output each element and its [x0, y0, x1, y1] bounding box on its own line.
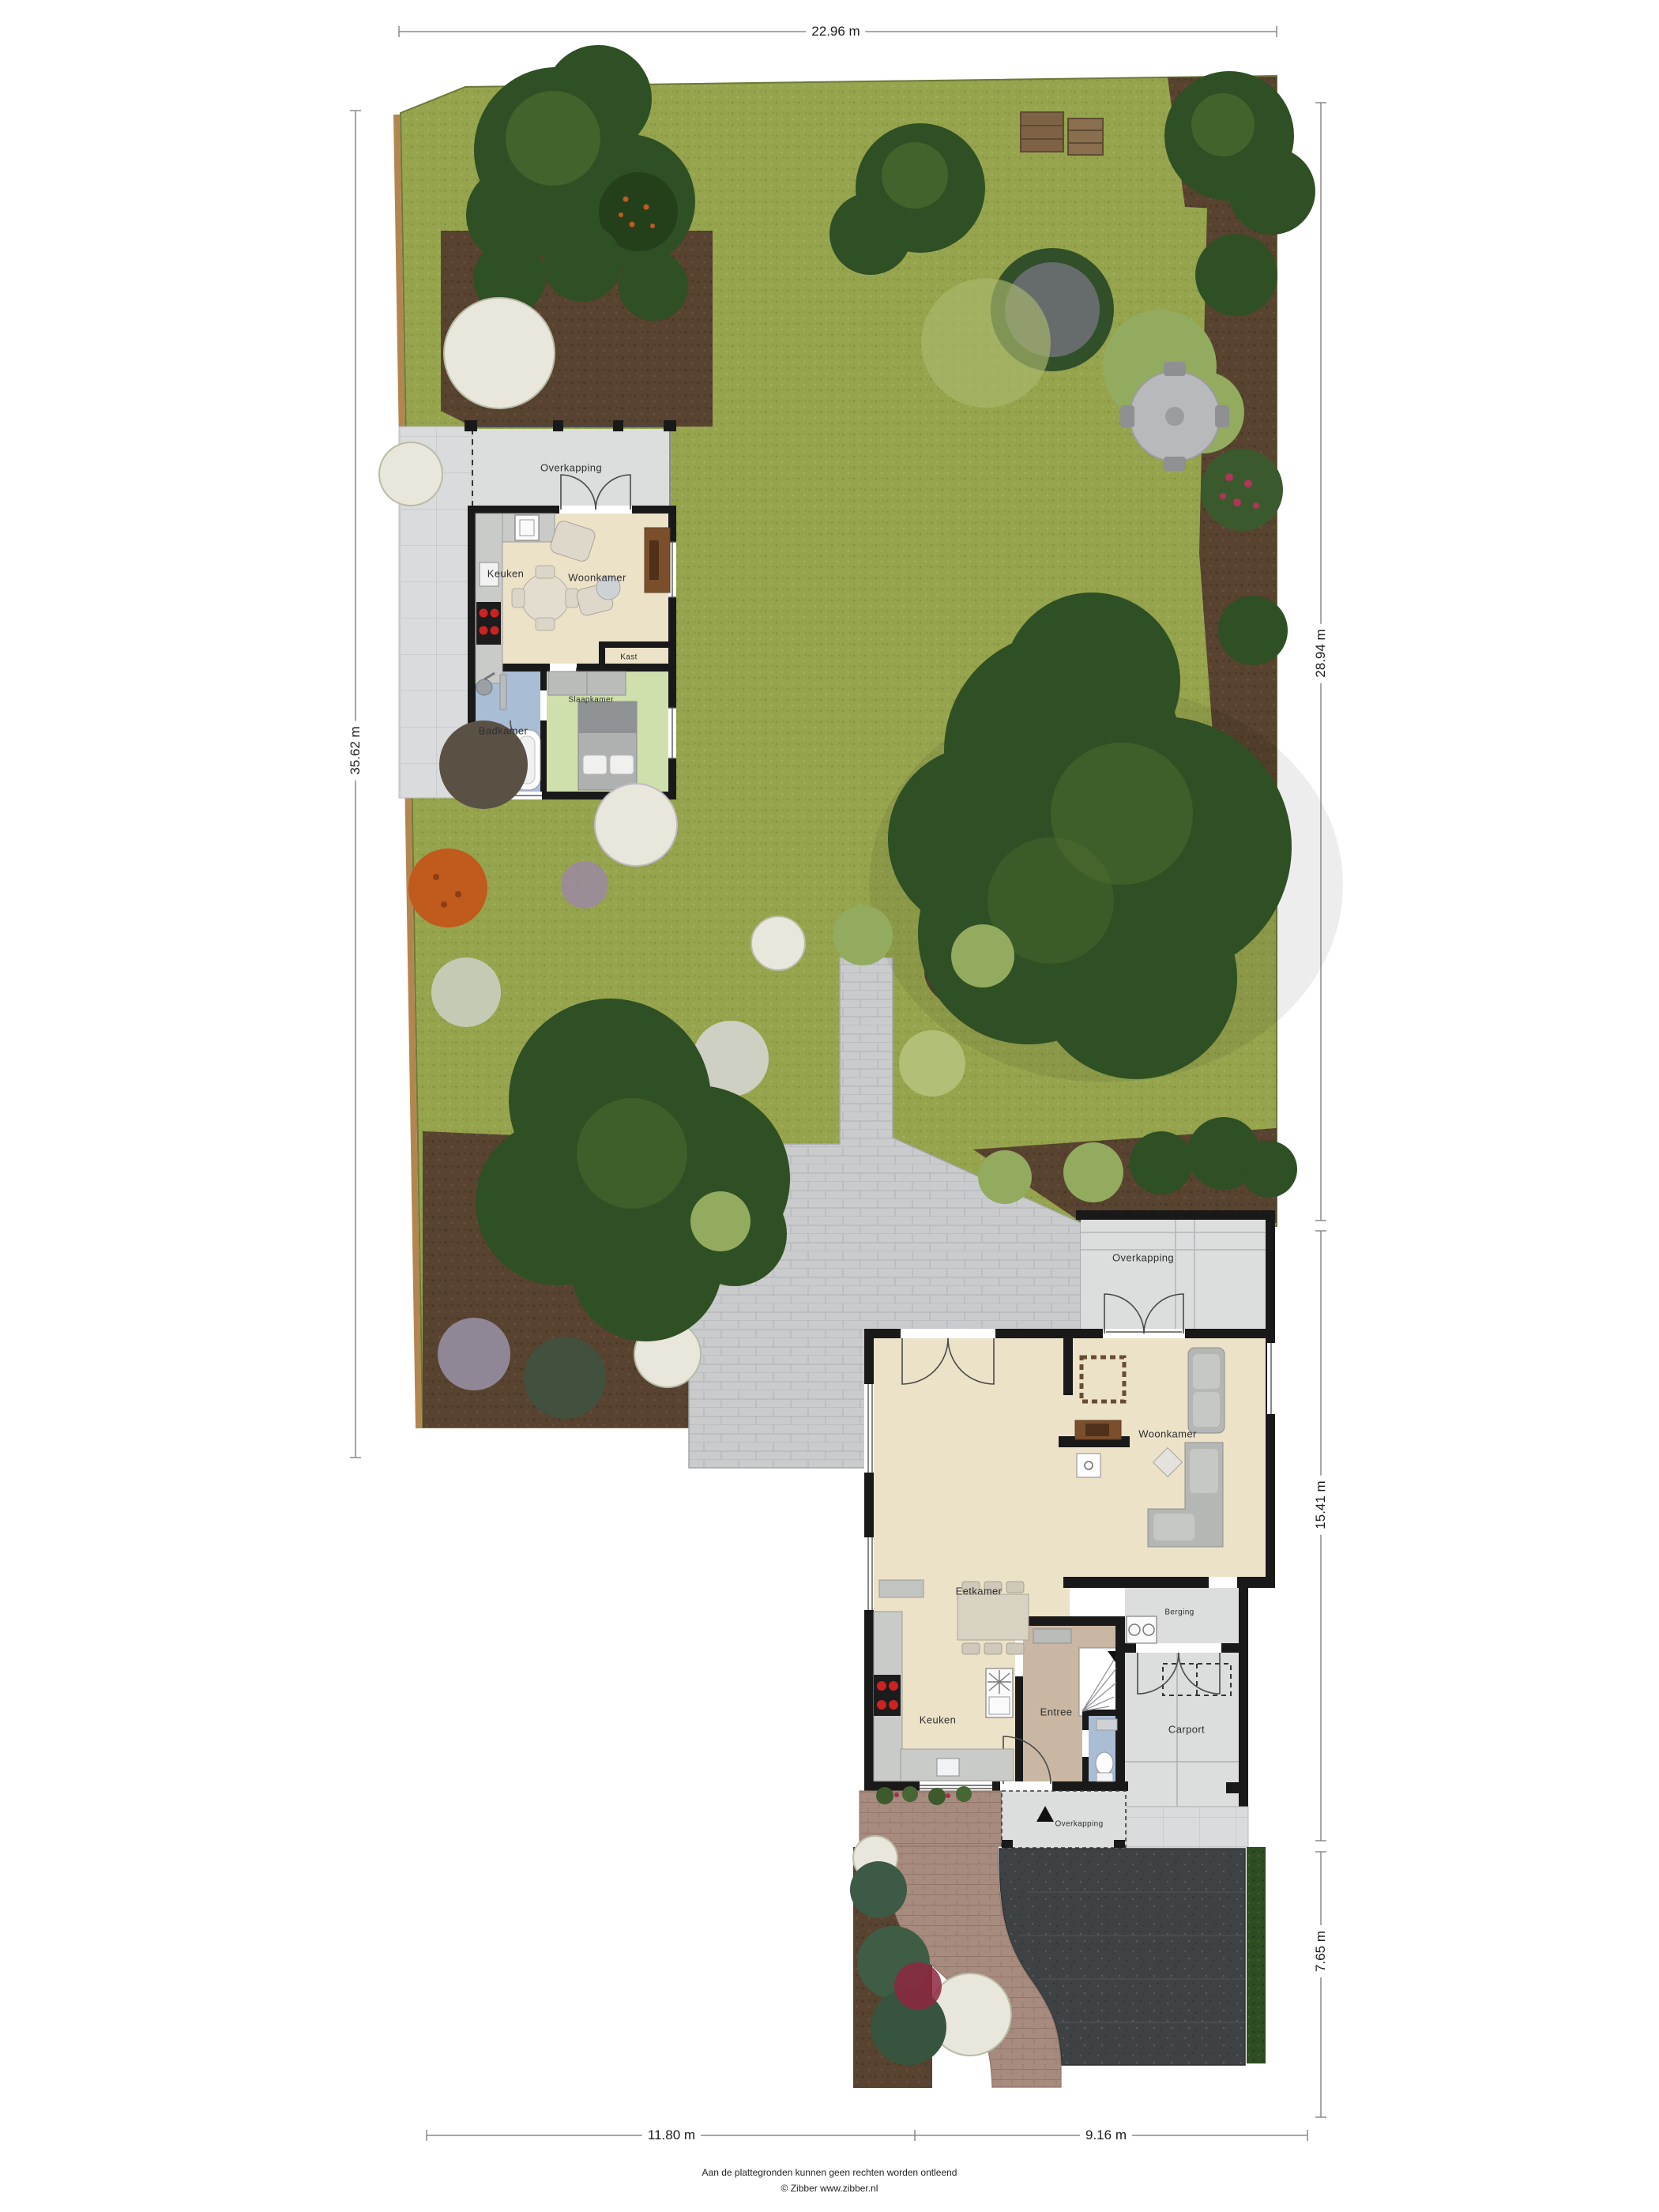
site-plan-drawing	[0, 0, 1659, 2212]
mh-eetkamer-label: Eetkamer	[956, 1586, 1003, 1597]
mh-keuken-label: Keuken	[920, 1714, 957, 1726]
dimension-right-top: 28.94 m	[1313, 623, 1329, 683]
dimension-left: 35.62 m	[348, 720, 363, 780]
dimension-bottom-left: 11.80 m	[642, 2127, 701, 2143]
footer-disclaimer: Aan de plattegronden kunnen geen rechten…	[702, 2167, 957, 2178]
mh-carport-label: Carport	[1168, 1724, 1205, 1736]
gh-kast-label: Kast	[620, 653, 638, 662]
mh-overkapping-rear-label: Overkapping	[1112, 1252, 1174, 1264]
dimension-right-middle: 15.41 m	[1313, 1475, 1329, 1534]
dimension-right-bottom: 7.65 m	[1313, 1925, 1329, 1977]
footer-copyright: © Zibber www.zibber.nl	[781, 2183, 878, 2194]
gh-slaapkamer-label: Slaapkamer	[568, 696, 613, 705]
hedge	[1247, 1847, 1266, 2063]
gh-badkamer-label: Badkamer	[479, 725, 528, 737]
mh-overkapping-front-label: Overkapping	[1055, 1820, 1103, 1829]
wooden-crates	[1021, 112, 1103, 155]
mh-storage-appliances	[1127, 1616, 1157, 1643]
site-plan-page: 22.96 m 35.62 m 28.94 m 15.41 m 7.65 m 1…	[0, 0, 1659, 2212]
dimension-top: 22.96 m	[806, 24, 865, 39]
mh-woonkamer-label: Woonkamer	[1138, 1428, 1196, 1440]
mh-entree-label: Entree	[1040, 1706, 1073, 1718]
gh-keuken-label: Keuken	[487, 568, 525, 580]
mh-berging-label: Berging	[1164, 1608, 1194, 1617]
mh-rear-overkapping-floor	[1081, 1220, 1269, 1330]
dimension-bottom-right: 9.16 m	[1080, 2127, 1132, 2143]
gh-overkapping-label: Overkapping	[540, 462, 602, 474]
gh-woonkamer-label: Woonkamer	[568, 572, 626, 584]
mh-stairs	[1079, 1648, 1117, 1716]
